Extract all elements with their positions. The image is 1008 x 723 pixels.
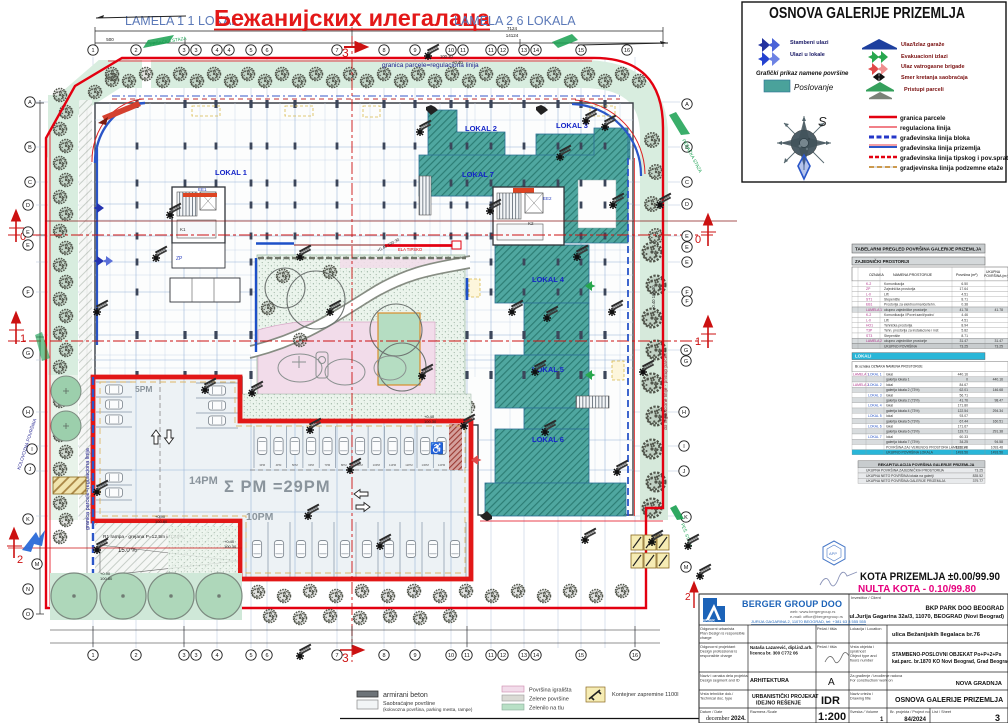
svg-text:LOKAL 1: LOKAL 1 [215,168,247,177]
svg-text:REKAPITULACIJA POVRŠINA GALERI: REKAPITULACIJA POVRŠINA GALERIJE PRIZEML… [878,462,975,467]
svg-text:List / Sheet: List / Sheet [932,710,952,714]
svg-text:1:200: 1:200 [818,711,846,723]
svg-text:Σ PM =29PM: Σ PM =29PM [224,478,331,496]
svg-text:+0.40: +0.40 [452,60,463,65]
svg-text:93.07: 93.07 [960,414,969,418]
svg-text:L-0: L-0 [866,318,871,322]
svg-text:Poslovanje: Poslovanje [794,83,834,92]
svg-text:Sveska / Volume: Sveska / Volume [850,710,878,714]
svg-text:G: G [26,351,30,357]
svg-text:Komunikacija //Povet.sanit/pod: Komunikacija //Povet.sanit/podrc/ [884,313,934,317]
svg-text:Datum / Date: Datum / Date [700,710,722,714]
svg-text:BERGER GROUP DOO: BERGER GROUP DOO [742,599,842,609]
svg-text:charge: charge [700,636,712,640]
svg-text:41.78: 41.78 [960,308,969,312]
svg-text:Br.oznaka OZNAKA NAM: Br.oznaka OZNAKA NAMENA PROSTORIJE [855,365,923,369]
svg-text:0: 0 [695,234,701,246]
svg-text:500: 500 [106,37,114,42]
svg-text:7: 7 [335,48,338,54]
svg-text:11: 11 [460,48,466,54]
svg-text:14PM: 14PM [438,463,446,467]
svg-text:11: 11 [488,48,494,54]
svg-text:H: H [26,410,30,416]
svg-text:C: C [28,180,32,186]
svg-text:94.58: 94.58 [995,440,1004,444]
svg-text:ZP: ZP [866,287,871,291]
svg-text:5: 5 [249,653,252,659]
svg-text:11: 11 [464,653,470,659]
svg-text:LOKAL 7: LOKAL 7 [868,435,882,439]
svg-text:Pečat / tišla: Pečat / tišla [817,627,838,631]
svg-text:15: 15 [578,48,584,54]
svg-text:O: O [26,612,31,618]
svg-text:BERGER: BERGER [701,619,715,623]
svg-text:5.82: 5.82 [961,329,968,333]
svg-text:4PM: 4PM [276,463,282,467]
svg-text:6: 6 [265,653,268,659]
svg-text:8: 8 [382,48,385,54]
svg-text:G: G [684,359,688,365]
svg-text:LOKAL 7: LOKAL 7 [462,170,494,179]
svg-text:E: E [26,230,30,236]
svg-text:291.38: 291.38 [993,430,1003,434]
svg-text:440.16: 440.16 [958,373,968,377]
svg-text:D: D [26,203,30,209]
svg-text:H: H [682,410,686,416]
svg-text:Ulaz/Izlaz garaže: Ulaz/Izlaz garaže [901,42,944,48]
svg-text:N: N [26,587,30,593]
svg-text:OSNOVA GALERIJE PRIZEMLJA: OSNOVA GALERIJE PRIZEMLJA [895,697,1003,704]
svg-text:14PM: 14PM [189,475,218,487]
svg-text:lokal: lokal [886,393,893,397]
svg-text:Zelenilo na tlu: Zelenilo na tlu [529,706,564,712]
svg-text:LOKAL 3: LOKAL 3 [868,393,882,397]
svg-text:LOKAL 6: LOKAL 6 [868,425,882,429]
svg-text:K1: K1 [180,227,186,232]
svg-text:6: 6 [265,48,268,54]
svg-text:LOKAL 4: LOKAL 4 [868,404,882,408]
svg-text:14: 14 [533,48,539,54]
svg-text:URBANISTIČKI PROJEKAT: URBANISTIČKI PROJEKAT [752,693,819,700]
svg-text:licenca br. 300 C772 06: licenca br. 300 C772 06 [750,651,798,656]
svg-text:gradjevinska linija podzemne e: gradjevinska linija podzemne etaže [900,165,1004,172]
svg-text:11: 11 [488,653,494,659]
svg-text:ul.Jurija Gagarina 32a/3, 1107: ul.Jurija Gagarina 32a/3, 11070, BEOGRAD… [849,614,1004,620]
svg-text:M: M [684,565,689,571]
svg-text:7: 7 [335,653,338,659]
svg-text:100.80: 100.80 [100,576,113,581]
svg-text:Pečat / tišla: Pečat / tišla [817,645,838,649]
svg-text:Drawing title: Drawing title [850,697,871,701]
svg-text:armirani beton: armirani beton [383,692,428,699]
svg-text:Technical doc. type: Technical doc. type [700,697,732,701]
svg-text:M: M [35,562,40,568]
svg-text:3: 3 [182,653,185,659]
svg-text:Naziv crteža /: Naziv crteža / [850,692,874,696]
svg-text:4: 4 [227,48,230,54]
svg-text:0.38: 0.38 [961,303,968,307]
svg-text:6.50: 6.50 [961,282,968,286]
svg-text:10PM: 10PM [373,463,381,467]
svg-text:Design segment and ID: Design segment and ID [700,679,740,683]
svg-text:171.67: 171.67 [958,425,968,429]
svg-text:4.46: 4.46 [961,313,968,317]
svg-text:41.78: 41.78 [995,308,1004,312]
svg-text:regulaciona linija: regulaciona linija [900,125,951,132]
svg-text:5PM: 5PM [292,463,298,467]
svg-text:J: J [683,469,686,475]
svg-text:ELA TIPSKO: ELA TIPSKO [398,247,423,252]
svg-text:IDEJNO REŠENJE: IDEJNO REŠENJE [756,699,802,707]
svg-text:Lift: Lift [884,318,889,322]
svg-text:4: 4 [215,653,218,659]
svg-text:LOKAL 3: LOKAL 3 [556,121,588,130]
svg-text:LAMELA 2: LAMELA 2 [866,339,882,343]
svg-text:Tehn. prostorija za instalacio: Tehn. prostorija za instalacione i inst [884,329,939,333]
svg-text:(kolovozna površina, parking m: (kolovozna površina, parking mesta, ramp… [383,707,473,712]
svg-text:STAMBENO-POSLOVNI OBJEKAT Po+P: STAMBENO-POSLOVNI OBJEKAT Po+P+2+Ps [892,652,1002,658]
svg-text:4.51: 4.51 [961,292,968,296]
svg-text:lokal: lokal [886,373,893,377]
svg-text:HO1: HO1 [866,324,873,328]
svg-text:Ulazi u lokale: Ulazi u lokale [790,52,825,58]
svg-text:G: G [684,348,688,354]
svg-text:E: E [685,234,689,240]
svg-text:LAMELA 1: LAMELA 1 [853,373,869,377]
svg-text:S: S [818,114,827,129]
svg-text:84.67: 84.67 [960,383,969,387]
svg-text:lokal: lokal [886,414,893,418]
svg-text:LAMELA 1: LAMELA 1 [866,308,882,312]
svg-text:+0.40 100.30: +0.40 100.30 [651,285,656,310]
svg-text:Investitor / Client: Investitor / Client [851,595,882,600]
svg-text:Br. projekta / Project no.: Br. projekta / Project no. [890,710,931,714]
svg-text:4.51: 4.51 [961,318,968,322]
svg-text:responsible charge: responsible charge [700,654,732,658]
svg-text:građevinska linija bloka: građevinska linija bloka [900,135,970,142]
svg-text:december 2024.: december 2024. [706,716,746,722]
svg-text:3: 3 [194,48,197,54]
svg-text:Vrsta tehničke dok./: Vrsta tehničke dok./ [700,692,734,696]
svg-text:K: K [684,515,688,521]
svg-text:31.47: 31.47 [995,339,1004,343]
svg-text:EE2: EE2 [543,196,552,201]
svg-text:lokal: lokal [886,435,893,439]
svg-text:119.71: 119.71 [958,430,968,434]
svg-text:31.47: 31.47 [960,339,969,343]
svg-text:L-0: L-0 [866,292,871,296]
svg-text:UKUPNA NETO POVRŠINA lokala na: UKUPNA NETO POVRŠINA lokala na galeriji [866,473,934,478]
svg-text:10: 10 [448,653,454,659]
svg-text:K2: K2 [528,221,534,226]
svg-text:16: 16 [632,653,638,659]
svg-text:11PM: 11PM [389,463,397,467]
svg-text:1203.48: 1203.48 [956,445,968,449]
svg-text:B: B [28,145,32,151]
svg-text:ST3: ST3 [866,334,872,338]
svg-text:LAMELA 2: LAMELA 2 [853,383,869,387]
svg-text:OZNAKA: OZNAKA [869,273,884,277]
svg-text:34.25: 34.25 [960,440,969,444]
svg-text:12PM: 12PM [405,463,413,467]
svg-text:A: A [28,100,32,106]
svg-text:E: E [685,260,689,266]
svg-text:POVRŠINA (m²): POVRŠINA (m²) [984,273,1008,278]
svg-text:1493.56: 1493.56 [991,451,1003,455]
svg-text:LOKALI: LOKALI [855,354,871,359]
svg-text:TABELARNI PREGLED POVRŠINA GAL: TABELARNI PREGLED POVRŠINA GALERIJE PRIZ… [855,245,982,252]
svg-text:K-2: K-2 [866,282,871,286]
svg-text:2: 2 [685,592,691,603]
svg-text:7PM: 7PM [325,463,331,467]
svg-text:3PM: 3PM [259,463,265,467]
svg-text:Plan Design is responsible: Plan Design is responsible [700,632,745,636]
svg-text:Бежанијских илегалаца: Бежанијских илегалаца [214,5,491,31]
svg-text:građevinska linija tipskog i p: građevinska linija tipskog i pov.sprata [900,155,1008,162]
svg-text:Grafički prikaz namene površin: Grafički prikaz namene površine [756,71,849,77]
svg-text:Tehnička prostorija: Tehnička prostorija [884,324,912,328]
svg-text:D: D [685,202,689,208]
svg-text:16: 16 [624,48,630,54]
svg-text:Prostorija za elektroormariće/: Prostorija za elektroormariće/tehn. [884,303,936,307]
svg-text:Stepenište: Stepenište [884,334,900,338]
svg-text:15.0 %: 15.0 % [118,548,137,554]
svg-text:Odgovorni projektant: Odgovorni projektant [700,645,736,649]
svg-text:EE1: EE1 [198,187,207,192]
svg-text:♿: ♿ [430,442,444,455]
svg-text:LAMELA 2 6 LOKALA: LAMELA 2 6 LOKALA [454,14,576,28]
svg-text:galerija lokala 5 (73%): galerija lokala 5 (73%) [886,419,920,423]
svg-text:NOVA GRADNJA: NOVA GRADNJA [956,681,1003,687]
svg-text:Površina igrališta: Površina igrališta [529,688,572,694]
svg-text:73.25: 73.25 [960,344,969,348]
svg-text:UKUPNO POVRŠINA LOKALA: UKUPNO POVRŠINA LOKALA [886,450,934,455]
svg-text:13PM: 13PM [422,463,430,467]
svg-text:galerija lokala 4 (73%): galerija lokala 4 (73%) [886,409,920,413]
svg-text:67.44: 67.44 [960,419,969,423]
svg-text:ukupno zajedničke prostorije: ukupno zajedničke prostorije [884,308,927,312]
svg-text:BKP PARK DOO BEOGRAD: BKP PARK DOO BEOGRAD [926,606,1005,612]
svg-text:1: 1 [91,48,94,54]
svg-text:17.64: 17.64 [960,287,969,291]
svg-text:1: 1 [91,653,94,659]
svg-text:Smer kretanja saobraćaja: Smer kretanja saobraćaja [901,75,969,81]
svg-text:62.01: 62.01 [960,388,969,392]
svg-text:146.68: 146.68 [993,388,1003,392]
svg-text:APP: APP [829,551,837,556]
svg-text:LOKAL 1: LOKAL 1 [868,373,882,377]
svg-text:galerija lokala 2 (73%): galerija lokala 2 (73%) [886,388,920,392]
svg-text:9: 9 [413,653,416,659]
svg-text:379.77: 379.77 [973,479,983,483]
svg-text:Odgovorni urbanista: Odgovorni urbanista [700,627,735,631]
svg-text:Komunikacija: Komunikacija [884,282,904,286]
svg-text:12: 12 [500,653,506,659]
svg-text:13: 13 [521,653,527,659]
svg-text:Zajednička prostorija: Zajednička prostorija [884,287,915,291]
svg-text:LOKAL 4: LOKAL 4 [532,275,565,284]
svg-text:14: 14 [533,653,539,659]
svg-text:13: 13 [521,48,527,54]
svg-text:Zelene površine: Zelene površine [529,697,569,703]
svg-text:56.71: 56.71 [960,393,969,397]
svg-text:5PM: 5PM [135,384,152,394]
svg-text:294.34: 294.34 [993,409,1003,413]
svg-text:3: 3 [342,46,349,60]
svg-text:ZP: ZP [176,256,183,262]
svg-text:galerija lokala 2 (73%): galerija lokala 2 (73%) [886,399,920,403]
svg-text:3: 3 [995,713,1000,723]
svg-text:12: 12 [500,48,506,54]
svg-text:4: 4 [215,48,218,54]
svg-text:2: 2 [17,554,23,566]
svg-text:C: C [685,180,689,186]
svg-text:ulica Bežanijskih Ilegalaca br: ulica Bežanijskih Ilegalaca br.76 [892,632,981,638]
svg-text:8.94: 8.94 [961,324,968,328]
svg-text:8.71: 8.71 [961,334,968,338]
svg-text:Lift: Lift [884,292,889,296]
svg-text:IDR: IDR [821,695,840,707]
svg-text:galerija lokala 7 (73%): galerija lokala 7 (73%) [886,440,920,444]
svg-text:8.71: 8.71 [961,298,968,302]
svg-text:granica parcele=regulaciona li: granica parcele=regulaciona linija [382,62,479,69]
svg-text:1493.56: 1493.56 [956,451,968,455]
svg-text:1093.48: 1093.48 [991,445,1003,449]
svg-text:98.47: 98.47 [995,399,1004,403]
svg-text:160.51: 160.51 [993,419,1003,423]
svg-text:galerija lokala 6 (73%): galerija lokala 6 (73%) [886,430,920,434]
svg-text:Nataša Lazarević, dipl.inž.arh: Nataša Lazarević, dipl.inž.arh. [750,645,812,650]
svg-text:3: 3 [182,48,185,54]
svg-text:6PM: 6PM [308,463,314,467]
svg-text:J: J [29,467,32,473]
svg-text:Površina (m²): Površina (m²) [956,273,978,277]
svg-text:100.30: 100.30 [424,419,437,424]
svg-text:LOKAL 2: LOKAL 2 [868,383,882,387]
svg-text:floors number: floors number [850,659,874,663]
svg-text:ST1: ST1 [866,298,872,302]
svg-text:Evakuacioni izlazi: Evakuacioni izlazi [901,54,948,60]
svg-text:A: A [685,102,689,108]
svg-text:3: 3 [194,653,197,659]
svg-text:Kontejner zapremine 1100l: Kontejner zapremine 1100l [612,692,678,698]
svg-text:K-2: K-2 [866,313,871,317]
svg-text:1: 1 [695,336,701,348]
svg-text:440.16: 440.16 [993,378,1003,382]
svg-text:15: 15 [578,653,584,659]
svg-text:NAMENA PROSTORIJE: NAMENA PROSTORIJE [893,273,933,277]
svg-text:8PM: 8PM [341,463,347,467]
svg-text:lokal: lokal [886,383,893,387]
svg-text:Vrsta objekta i: Vrsta objekta i [850,645,874,649]
svg-text:835.52: 835.52 [973,474,983,478]
svg-text:KOTA PRIZEMLJA ±0.00/99.90: KOTA PRIZEMLJA ±0.00/99.90 [860,571,1000,583]
svg-text:LOKAL 5: LOKAL 5 [868,414,882,418]
svg-text:UKUPNA POVRŠINA ZAJEDNIČKIH PR: UKUPNA POVRŠINA ZAJEDNIČKIH PROSTORIJA [866,468,945,473]
svg-text:100.30: 100.30 [440,54,453,59]
svg-text:lokal: lokal [886,404,893,408]
svg-text:K: K [26,517,30,523]
svg-text:Stepenište: Stepenište [884,298,900,302]
svg-text:Pristupi parceli: Pristupi parceli [904,87,944,93]
svg-text:5: 5 [249,48,252,54]
svg-text:73.25: 73.25 [975,469,984,473]
svg-text:2: 2 [134,48,137,54]
svg-text:NULTA KOTA - 0.10/99.80: NULTA KOTA - 0.10/99.80 [858,584,976,595]
svg-text:Naziv i oznaka dela projekta: Naziv i oznaka dela projekta [700,674,748,678]
svg-text:8: 8 [382,653,385,659]
svg-text:E: E [26,243,30,249]
svg-text:3: 3 [342,651,349,665]
svg-text:100.30: 100.30 [224,544,237,549]
svg-text:14124: 14124 [506,33,519,38]
svg-text:9: 9 [413,48,416,54]
svg-text:2: 2 [134,653,137,659]
svg-text:Ulaz vatrogasne brigade: Ulaz vatrogasne brigade [901,64,965,70]
svg-text:lokal: lokal [886,425,893,429]
svg-text:kat.parc. br.1870 KO Novi Beog: kat.parc. br.1870 KO Novi Beograd, Grad … [892,659,1008,665]
svg-text:UKUPNO POVRŠINA: UKUPNO POVRŠINA [884,343,918,348]
svg-text:ukupno zajedničke prostorije: ukupno zajedničke prostorije [884,339,927,343]
svg-text:do regulacione linije - pristu: do regulacione linije - pristup parceli [663,353,669,430]
svg-text:granica parcele: granica parcele [900,115,946,122]
svg-text:10PM: 10PM [246,511,274,523]
svg-text:galerija lokala 1: galerija lokala 1 [886,378,910,382]
svg-text:ZAJEDNIČKI PROSTORIJI: ZAJEDNIČKI PROSTORIJI [855,259,909,264]
svg-text:UKUPNA NETO POVRŠINA GALERIJE: UKUPNA NETO POVRŠINA GALERIJE PRIZEMLJA [866,478,946,483]
svg-text:T3P: T3P [866,329,873,333]
svg-text:ARHITEKTURA: ARHITEKTURA [750,678,789,684]
svg-text:171.80: 171.80 [958,404,968,408]
svg-text:1: 1 [20,333,26,345]
svg-text:73.25: 73.25 [995,344,1004,348]
svg-text:41.76: 41.76 [960,399,969,403]
svg-text:A: A [828,677,835,688]
svg-text:OSNOVA GALERIJE PRIZEMLJA: OSNOVA GALERIJE PRIZEMLJA [769,5,965,22]
svg-text:građevinska linija prizemlja: građevinska linija prizemlja [900,145,981,152]
svg-text:122.54: 122.54 [958,409,968,413]
svg-text:For construction/ work on: For construction/ work on [850,679,893,683]
svg-text:spratnost: spratnost [850,650,867,654]
svg-text:84/2024: 84/2024 [904,717,926,723]
svg-text:Razmera /Scale: Razmera /Scale [750,710,777,714]
svg-text:Stambeni ulazi: Stambeni ulazi [790,40,829,46]
svg-text:LOKAL 2: LOKAL 2 [465,124,497,133]
svg-text:E: E [685,245,689,251]
svg-text:60.33: 60.33 [960,435,969,439]
svg-text:Za građenje / izvođenje radova: Za građenje / izvođenje radova [850,674,903,678]
svg-text:Design professional is: Design professional is [700,650,737,654]
svg-text:0: 0 [966,378,968,382]
svg-text:Lokacija / Location: Lokacija / Location [850,627,881,631]
svg-text:Object type and: Object type and [850,654,877,658]
svg-text:100.80: 100.80 [155,519,168,524]
svg-text:EB1: EB1 [866,303,873,307]
svg-text:LOKAL 6: LOKAL 6 [532,435,564,444]
